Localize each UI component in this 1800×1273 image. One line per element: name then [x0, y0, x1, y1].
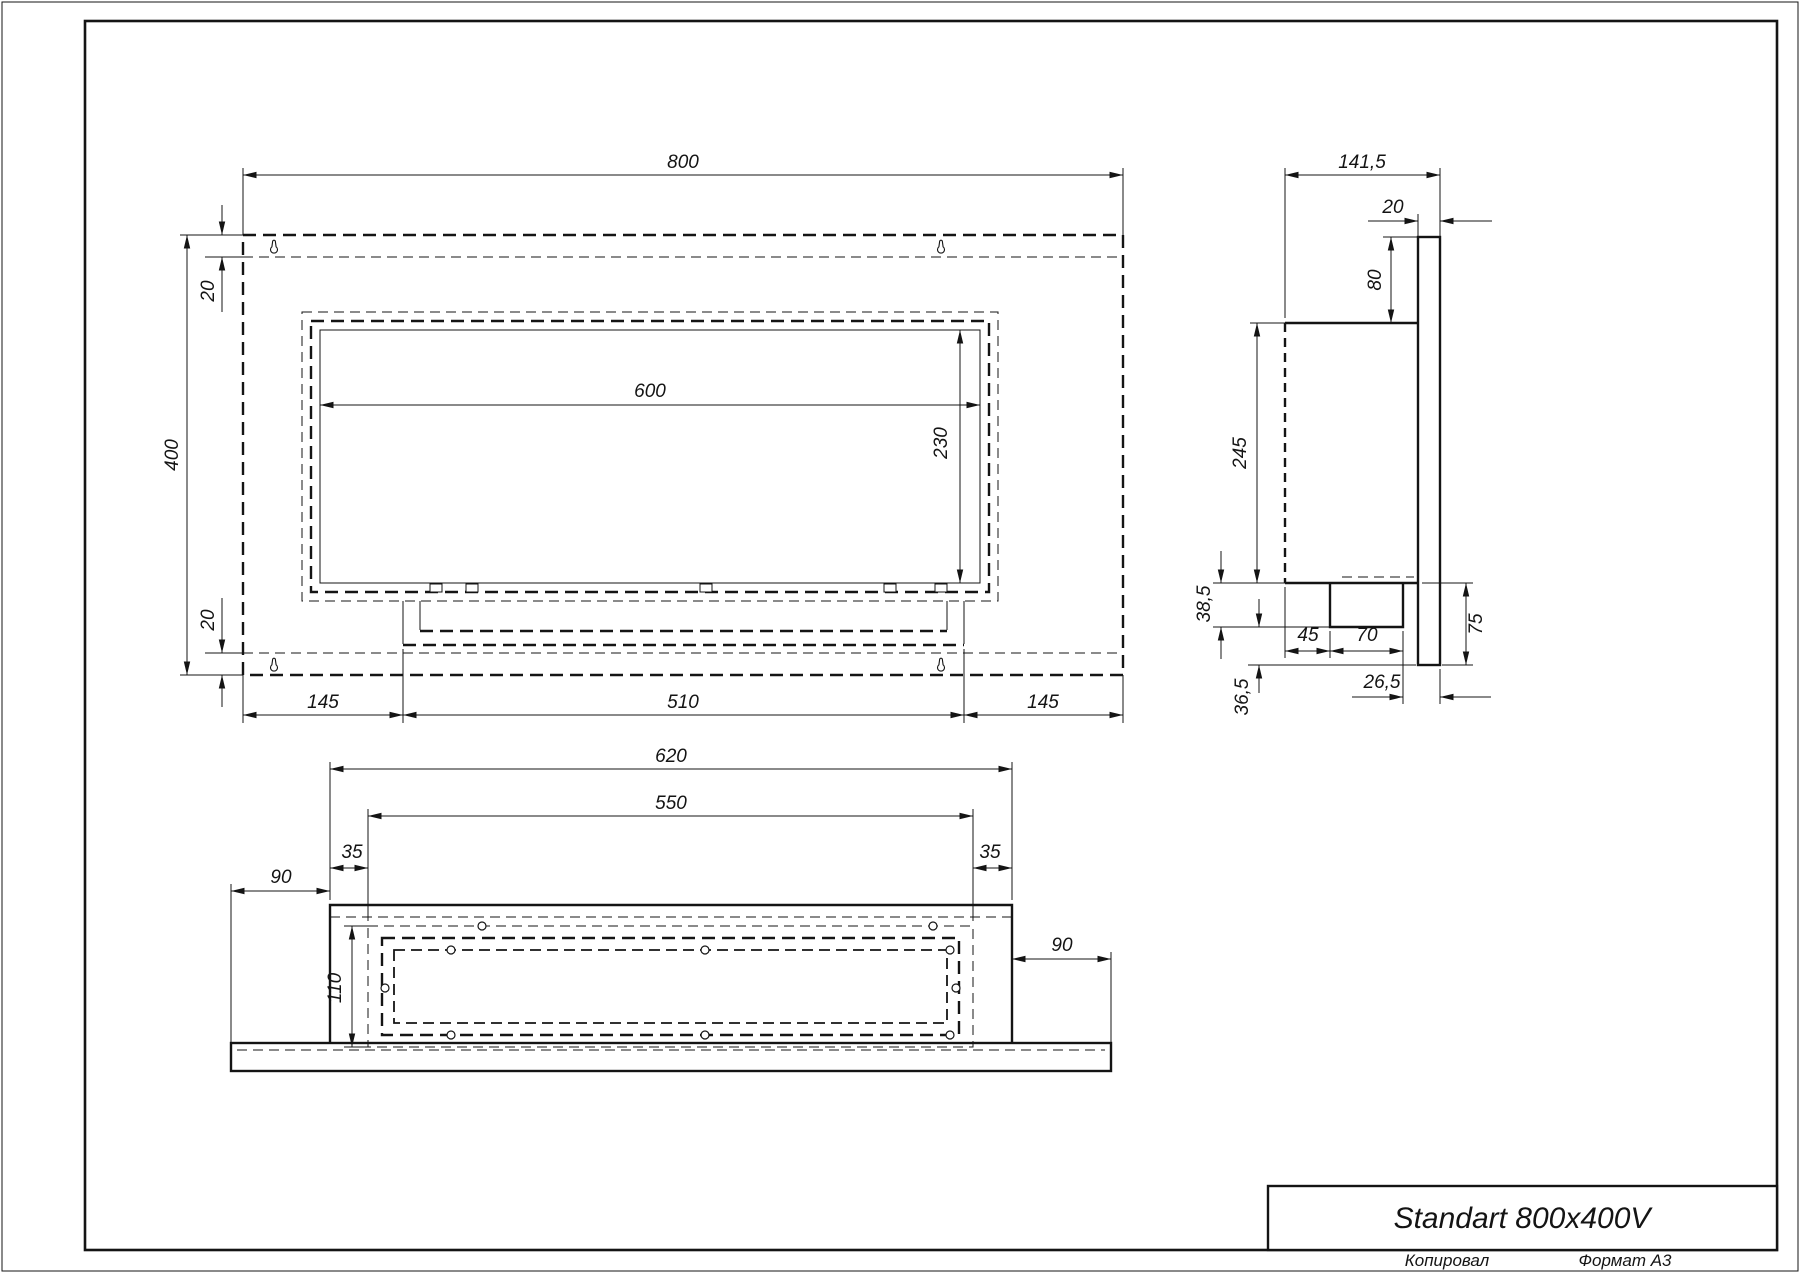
- technical-drawing: 800 400 20 20 600 230 145: [0, 0, 1800, 1273]
- dim-right-inset: 35: [979, 842, 1001, 863]
- title-block: Standart 800x400V Копировал Формат А3: [1268, 1186, 1777, 1270]
- front-dimensions: 800 400 20 20 600 230 145: [162, 152, 1123, 723]
- drawing-title: Standart 800x400V: [1394, 1202, 1654, 1235]
- dim-front-width: 800: [667, 152, 699, 173]
- footer-format: Формат А3: [1578, 1251, 1672, 1270]
- dim-side-depth: 141,5: [1338, 152, 1386, 173]
- keyhole-slot-icon: [938, 658, 945, 671]
- front-window-mid: [311, 321, 989, 592]
- dim-window-height: 230: [931, 427, 952, 460]
- bottom-dimensions: 620 550 35 35 90 90 110: [231, 746, 1111, 1047]
- bottom-frame-outer: [368, 926, 973, 1047]
- dim-front-top-offset: 20: [198, 280, 219, 303]
- dim-tray-width: 510: [667, 692, 699, 713]
- keyhole-slot-icon: [271, 240, 278, 253]
- dim-window-width: 600: [634, 381, 666, 402]
- front-window-opening: [320, 330, 980, 583]
- dim-left-margin: 145: [307, 692, 339, 713]
- dim-right-wing: 90: [1051, 935, 1073, 956]
- dim-frame-depth: 110: [325, 972, 346, 1003]
- dim-front-height: 400: [162, 439, 183, 471]
- side-burner-box: [1330, 583, 1403, 627]
- dim-plate-top-drop: 80: [1365, 269, 1386, 291]
- drawing-sheet: 800 400 20 20 600 230 145: [0, 0, 1800, 1273]
- dim-left-inset: 35: [341, 842, 363, 863]
- dim-lower-drop: 36,5: [1232, 678, 1253, 715]
- keyhole-slot-icon: [271, 658, 278, 671]
- dim-bottom-frame-width: 550: [655, 793, 687, 814]
- front-window-outer: [302, 312, 998, 601]
- keyhole-slot-icon: [938, 240, 945, 253]
- dim-side-body-height: 245: [1230, 437, 1251, 470]
- screw-holes: [381, 922, 960, 1039]
- dim-front-bottom-offset: 20: [198, 609, 219, 632]
- front-tray: [403, 601, 964, 645]
- dim-front-inset: 45: [1297, 625, 1319, 646]
- footer-copied-by: Копировал: [1405, 1251, 1490, 1270]
- dim-back-gap: 26,5: [1363, 672, 1401, 693]
- side-view: 141,5 20 80 245 38,5 36,5: [1194, 152, 1492, 715]
- dim-bottom-body-width: 620: [655, 746, 687, 767]
- front-view: 800 400 20 20 600 230 145: [162, 152, 1123, 723]
- page-border: [2, 2, 1798, 1271]
- dim-tray-drop: 38,5: [1194, 585, 1215, 622]
- bottom-frame-mid: [382, 938, 959, 1035]
- front-outer-body: [243, 235, 1123, 675]
- bottom-view: 620 550 35 35 90 90 110: [231, 746, 1111, 1071]
- dim-plate-thickness: 20: [1381, 197, 1404, 218]
- dim-burner-width: 70: [1356, 625, 1378, 646]
- bottom-frame-inner: [394, 950, 947, 1023]
- dim-left-wing: 90: [270, 867, 292, 888]
- side-wall-plate: [1418, 237, 1440, 665]
- side-dimensions: 141,5 20 80 245 38,5 36,5: [1194, 152, 1492, 715]
- dim-plate-below-body: 75: [1466, 613, 1487, 635]
- dim-right-margin: 145: [1027, 692, 1059, 713]
